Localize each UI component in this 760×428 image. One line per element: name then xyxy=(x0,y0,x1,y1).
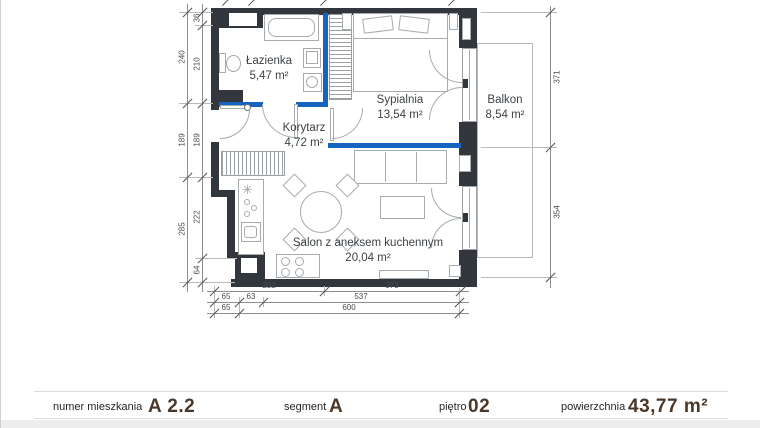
ext-line xyxy=(179,177,213,178)
dim-label: 292 xyxy=(262,281,275,290)
burner-4 xyxy=(295,268,304,277)
bath-niche xyxy=(229,13,257,26)
kitchen-sink-bowl xyxy=(244,226,257,238)
dim-label: 373 xyxy=(385,281,398,290)
nightstand-right xyxy=(449,13,458,30)
tv-cabinet xyxy=(379,270,429,279)
dim-label: 285 xyxy=(178,222,187,235)
corner-block-shaft xyxy=(241,258,257,273)
dim-label: 65 xyxy=(222,303,231,312)
wall-right-mid xyxy=(459,122,477,186)
kitchen-knob-2 xyxy=(251,205,257,211)
room-name: Sypialnia xyxy=(330,93,470,108)
blue-wall-corridor-right xyxy=(296,102,328,107)
dim-chain-left-inner xyxy=(202,4,203,292)
kitchen-knob-1 xyxy=(244,199,250,205)
footer-label-area: powierzchnia xyxy=(561,401,625,413)
dim-label: 240 xyxy=(178,50,187,63)
dim-label: 65 xyxy=(222,292,231,301)
dim-label: 36 xyxy=(193,14,202,23)
room-label-sypialnia: Sypialnia 13,54 m² xyxy=(330,93,470,123)
room-label-balkon: Balkon 8,54 m² xyxy=(455,93,555,123)
dim-label: 63 xyxy=(247,292,256,301)
room-name: Salon z aneksem kuchennym xyxy=(268,236,468,251)
kitchen-star-icon: ✳ xyxy=(242,182,253,198)
coffee-table xyxy=(380,196,425,219)
footer-bottom-strip xyxy=(1,420,760,428)
dim-label: 210 xyxy=(193,57,202,70)
balcony-outline xyxy=(477,43,533,258)
wall-left-salon xyxy=(227,190,235,258)
dim-label: 222 xyxy=(193,210,202,223)
dim-label: 354 xyxy=(553,205,562,218)
footer-value-apartment-number: A 2.2 xyxy=(148,396,195,418)
window-handle-salon xyxy=(463,213,468,222)
radiator-bedroom xyxy=(462,18,471,40)
dim-chain-bottom-2 xyxy=(207,302,469,303)
ext-line xyxy=(481,12,557,13)
dim-label: 64 xyxy=(193,266,202,275)
dim-chain-left-outer xyxy=(187,4,188,292)
wall-left-corridor xyxy=(211,142,219,197)
kitchen-knob-3 xyxy=(244,211,250,217)
footer-value-area: 43,77 m² xyxy=(628,396,708,418)
window-frame-line-salon xyxy=(469,188,470,248)
room-label-korytarz: Korytarz 4,72 m² xyxy=(244,121,364,151)
ext-line xyxy=(179,103,213,104)
dim-label: 371 xyxy=(553,70,562,83)
dim-label: 600 xyxy=(342,303,355,312)
bed-blanket-line xyxy=(353,38,448,39)
floor-plan-page: ✳ Łazienka 5,47 m² Sypialnia 13,54 m² Ko… xyxy=(0,0,760,428)
radiator-mid-wall xyxy=(459,155,471,172)
footer-label-segment: segment xyxy=(284,401,326,413)
ext-line xyxy=(481,277,557,278)
room-area: 20,04 m² xyxy=(268,251,468,266)
corridor-wardrobe xyxy=(221,151,285,176)
dining-table xyxy=(300,191,342,233)
sofa-divider-1 xyxy=(385,152,386,182)
room-area: 4,72 m² xyxy=(244,136,364,151)
room-name: Korytarz xyxy=(244,121,364,136)
room-label-lazienka: Łazienka 5,47 m² xyxy=(209,54,329,84)
footer-value-segment: A xyxy=(329,396,343,418)
dim-tick xyxy=(320,0,327,6)
dim-label: 189 xyxy=(178,133,187,146)
ext-line xyxy=(195,25,213,26)
footer-label-floor: piętro xyxy=(439,401,467,413)
dim-tick xyxy=(448,0,455,6)
room-label-salon: Salon z aneksem kuchennym 20,04 m² xyxy=(268,236,468,266)
ext-line xyxy=(481,147,557,148)
bathtub-inner xyxy=(268,18,315,37)
salon-balcony-door-swing-upper xyxy=(431,188,461,218)
chair-nw xyxy=(282,173,306,197)
dim-tick xyxy=(248,0,255,6)
room-area: 8,54 m² xyxy=(455,108,555,123)
dim-label: 189 xyxy=(193,133,202,146)
dim-chain-bottom-3 xyxy=(207,313,469,314)
radiator-salon xyxy=(449,265,461,277)
burner-3 xyxy=(281,268,290,277)
sofa xyxy=(354,150,447,184)
footer-bottom-divider xyxy=(34,418,728,419)
room-name: Łazienka xyxy=(209,54,329,69)
dim-tick xyxy=(222,0,229,6)
sofa-divider-2 xyxy=(416,152,417,182)
room-area: 5,47 m² xyxy=(209,69,329,84)
footer-top-divider xyxy=(34,391,728,392)
footer-value-floor: 02 xyxy=(468,396,490,418)
window-handle-bedroom xyxy=(463,79,468,88)
nightstand-left xyxy=(342,13,352,30)
dim-label: 537 xyxy=(354,292,367,301)
footer-label-apartment-number: numer mieszkania xyxy=(53,401,142,413)
room-name: Balkon xyxy=(455,93,555,108)
